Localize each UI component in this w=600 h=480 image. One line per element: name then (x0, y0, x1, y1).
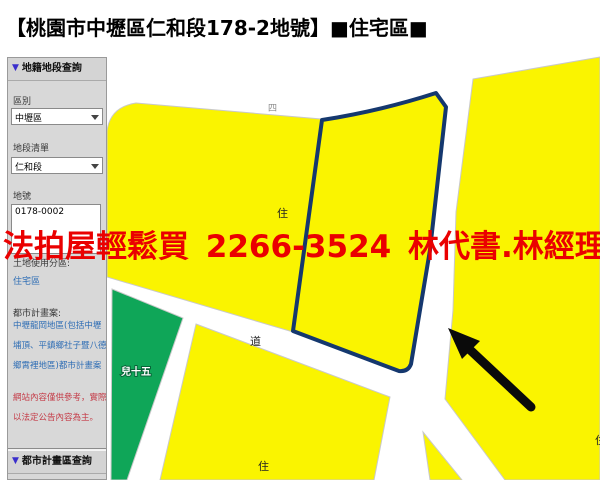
ad-banner-text: 法拍屋輕鬆買 2266-3524 林代書.林經理 (3, 221, 599, 266)
cadastral-query-header[interactable]: ▼地籍地段查詢 (8, 58, 106, 81)
map-clipped-top-label: 四 (268, 101, 277, 114)
chevron-down-icon (91, 164, 99, 169)
zone-block-left (107, 103, 321, 332)
zoning-map-canvas: 住 道 住 住 兒十五 (107, 55, 600, 480)
section-list-select[interactable]: 仁和段 (11, 157, 103, 174)
page-title: 【桃園市中壢區仁和段178-2地號】■住宅區■ (6, 12, 566, 41)
parcel-number-value: 0178-0002 (15, 207, 64, 217)
section-triangle-icon: ▼ (12, 57, 19, 79)
district-label: 區別 (13, 94, 31, 107)
zone-block-triangle (423, 432, 462, 480)
section-list-label: 地段清單 (13, 141, 49, 154)
parcel-number-label: 地號 (13, 189, 31, 202)
section-list-select-value: 仁和段 (15, 160, 42, 173)
cadastral-query-header-label: 地籍地段查詢 (22, 63, 82, 74)
plan-zone-query-header-label: 都市計畫區查詢 (22, 456, 92, 467)
district-select[interactable]: 中壢區 (11, 108, 103, 125)
zone-label-center: 住 (277, 206, 288, 220)
urban-plan-name: 中壢龍岡地區(包括中壢埔頂、平鎮鄉社子暨八德鄉霄裡地區)都市計畫案 (13, 316, 107, 376)
section-triangle-icon: ▼ (12, 450, 19, 472)
app-window: { "title": "【桃園市中壢區仁和段178-2地號】■住宅區■", "b… (0, 0, 600, 480)
zone-block-right (445, 57, 600, 480)
zoning-map[interactable]: 四 住 道 住 住 兒十五 (107, 55, 600, 480)
land-use-zoning-value: 住宅區 (13, 274, 40, 287)
zone-label-bottom: 住 (258, 459, 269, 473)
road-label: 道 (250, 334, 261, 348)
plan-zone-query-header[interactable]: ▼都市計畫區查詢 (8, 450, 106, 474)
disclaimer-text: 網站內容僅供參考，實際以法定公告內容為主。 (13, 388, 107, 428)
park-zone-label: 兒十五 (121, 365, 151, 378)
zone-label-right-clipped: 住 (595, 433, 600, 447)
cadastral-query-panel: ▼地籍地段查詢 區別 中壢區 地段清單 仁和段 地號 0178-0002 土地使… (7, 57, 107, 480)
chevron-down-icon (91, 115, 99, 120)
district-select-value: 中壢區 (15, 111, 42, 124)
